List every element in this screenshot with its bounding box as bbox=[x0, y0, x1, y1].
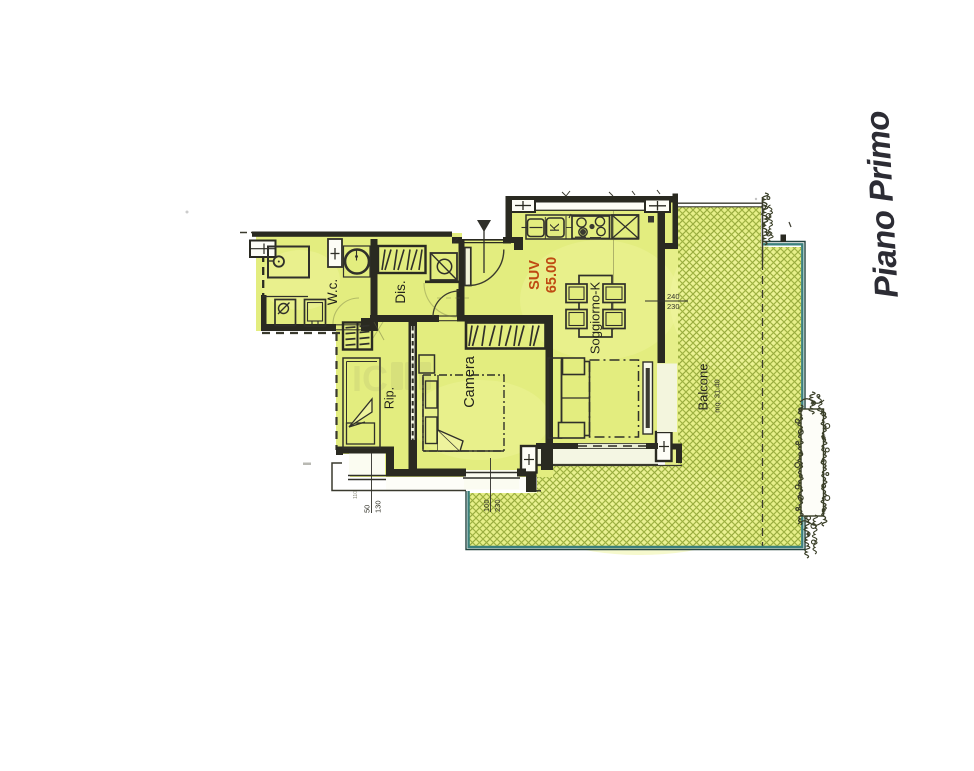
svg-text:100: 100 bbox=[482, 499, 491, 512]
svg-text:Balcone: Balcone bbox=[696, 364, 711, 411]
svg-text:130: 130 bbox=[374, 500, 383, 513]
svg-text:50: 50 bbox=[363, 505, 372, 513]
svg-text:240: 240 bbox=[667, 292, 680, 301]
svg-text:110: 110 bbox=[353, 491, 359, 499]
svg-text:Camera: Camera bbox=[462, 355, 478, 408]
svg-text:Soggiorno-K: Soggiorno-K bbox=[588, 282, 603, 355]
svg-text:W.c.: W.c. bbox=[325, 279, 340, 305]
svg-text:IC: IC bbox=[352, 358, 388, 399]
svg-text:230: 230 bbox=[493, 499, 502, 512]
svg-text:230: 230 bbox=[667, 302, 680, 311]
svg-text:Dis.: Dis. bbox=[393, 280, 408, 303]
svg-text:K: K bbox=[547, 223, 562, 232]
svg-text:mq. 31.40: mq. 31.40 bbox=[713, 379, 722, 412]
svg-text:65.00: 65.00 bbox=[544, 257, 560, 293]
svg-text:SUV: SUV bbox=[527, 260, 543, 290]
